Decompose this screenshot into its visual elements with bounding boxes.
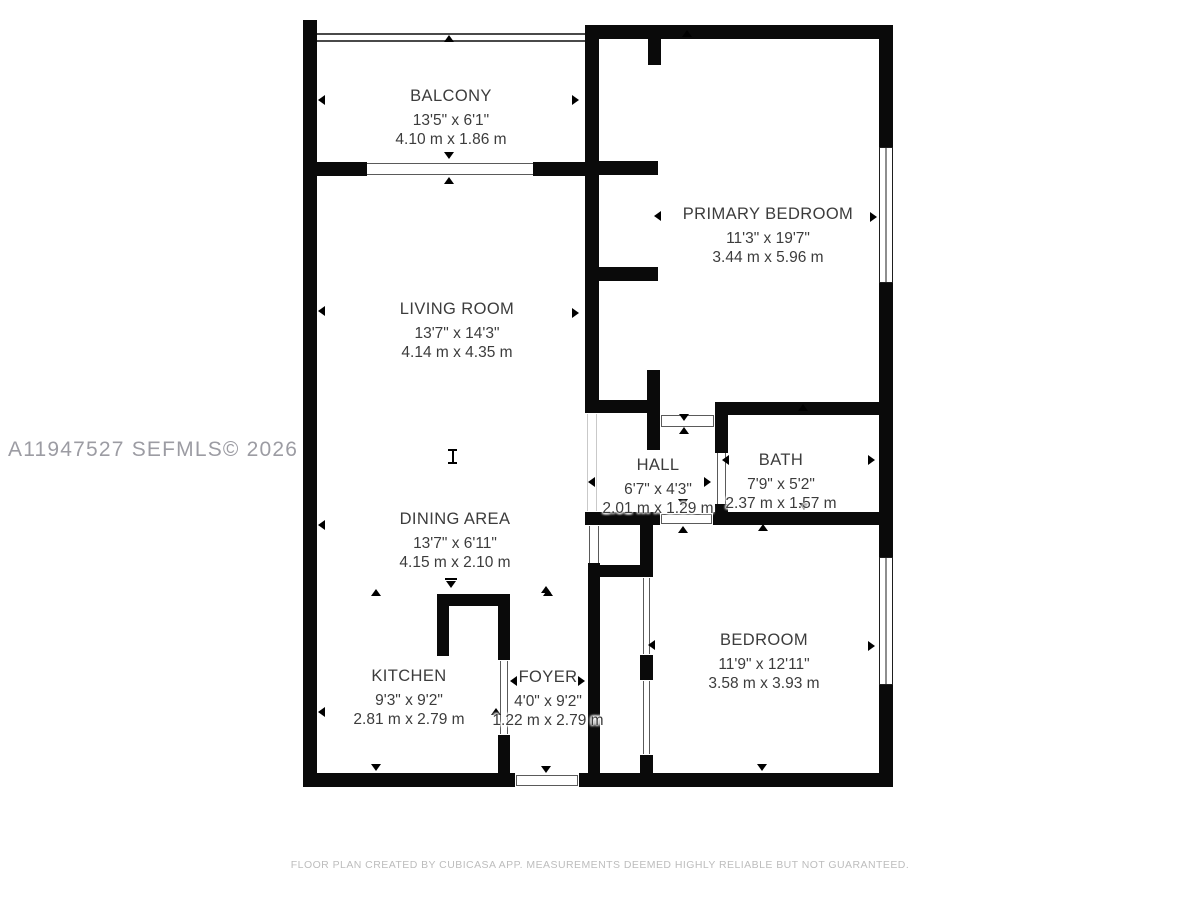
- room-dim-metric: 3.58 m x 3.93 m: [614, 674, 914, 693]
- wall-primary-closet-1: [599, 161, 658, 175]
- direction-marker: [758, 524, 768, 531]
- room-label-living-room: LIVING ROOM 13'7" x 14'3" 4.14 m x 4.35 …: [307, 300, 607, 362]
- room-name: BATH: [631, 451, 931, 470]
- wall-hall-top: [585, 400, 647, 413]
- direction-marker: [446, 581, 456, 588]
- room-dim-imperial: 4'0" x 9'2": [398, 692, 698, 711]
- room-name: DINING AREA: [305, 510, 605, 529]
- room-name: LIVING ROOM: [307, 300, 607, 319]
- wall-kitchen-foyer-lower: [498, 735, 510, 775]
- door-entry: [516, 775, 578, 786]
- room-label-dining-area: DINING AREA 13'7" x 6'11" 4.15 m x 2.10 …: [305, 510, 605, 572]
- direction-marker: [444, 35, 454, 42]
- room-label-bedroom: BEDROOM 11'9" x 12'11" 3.58 m x 3.93 m: [614, 631, 914, 693]
- direction-marker: [757, 764, 767, 771]
- direction-marker: [371, 589, 381, 596]
- direction-marker: [541, 766, 551, 773]
- sliding-door-balcony: [367, 163, 533, 175]
- room-label-balcony: BALCONY 13'5" x 6'1" 4.10 m x 1.86 m: [301, 87, 601, 149]
- room-dim-metric: 1.22 m x 2.79 m: [398, 711, 698, 730]
- room-label-bath: BATH 7'9" x 5'2" 2.37 m x 1.57 m: [631, 451, 931, 513]
- room-label-primary-bedroom: PRIMARY BEDROOM 11'3" x 19'7" 3.44 m x 5…: [618, 205, 918, 267]
- wall-exterior-top: [585, 25, 893, 39]
- room-dim-imperial: 11'3" x 19'7": [618, 229, 918, 248]
- mls-watermark: A11947527 SEFMLS© 2026: [8, 438, 298, 462]
- room-dim-metric: 4.10 m x 1.86 m: [301, 130, 601, 149]
- direction-marker: [679, 427, 689, 434]
- wall-bedroom-left-1: [640, 513, 653, 577]
- room-dim-imperial: 13'7" x 14'3": [307, 324, 607, 343]
- wall-exterior-bottom-right: [579, 773, 893, 787]
- direction-marker: [444, 177, 454, 184]
- room-dim-imperial: 7'9" x 5'2": [631, 475, 931, 494]
- wall-kitchen-leg-left: [437, 606, 449, 656]
- floorplan-canvas: A11947527 SEFMLS© 2026 FLOOR PLAN CREATE…: [0, 0, 1200, 900]
- room-dim-imperial: 11'9" x 12'11": [614, 655, 914, 674]
- wall-kitchen-leg-right: [498, 606, 510, 660]
- disclaimer-footer: FLOOR PLAN CREATED BY CUBICASA APP. MEAS…: [0, 859, 1200, 871]
- room-name: BALCONY: [301, 87, 601, 106]
- direction-marker: [678, 526, 688, 533]
- direction-marker: [798, 404, 808, 411]
- direction-marker: [445, 578, 457, 580]
- wall-primary-door-jamb: [647, 370, 660, 450]
- wall-exterior-right-top: [879, 25, 893, 147]
- direction-marker: [444, 152, 454, 159]
- room-dim-metric: 2.37 m x 1.57 m: [631, 494, 931, 513]
- direction-marker: [679, 414, 689, 421]
- wall-bath-top: [728, 402, 893, 415]
- direction-marker: [682, 30, 692, 37]
- wall-primary-closet-stub: [648, 39, 661, 65]
- room-dim-metric: 3.44 m x 5.96 m: [618, 248, 918, 267]
- room-name: PRIMARY BEDROOM: [618, 205, 918, 224]
- wall-bath-left-upper: [715, 402, 728, 453]
- wall-bedroom-left-3: [640, 755, 653, 775]
- wall-exterior-right-bottom: [879, 685, 893, 787]
- room-name: BEDROOM: [614, 631, 914, 650]
- room-dim-metric: 4.14 m x 4.35 m: [307, 343, 607, 362]
- wall-exterior-bottom-left: [303, 773, 515, 787]
- wall-balcony-bottom-left: [317, 162, 367, 176]
- ceiling-height-marker: [448, 449, 457, 464]
- room-dim-imperial: 13'7" x 6'11": [305, 534, 605, 553]
- direction-marker: [371, 764, 381, 771]
- wall-primary-closet-2: [599, 267, 658, 281]
- room-dim-metric: 4.15 m x 2.10 m: [305, 553, 605, 572]
- direction-marker: [541, 586, 551, 593]
- wall-kitchen-top: [437, 594, 510, 606]
- room-dim-imperial: 13'5" x 6'1": [301, 111, 601, 130]
